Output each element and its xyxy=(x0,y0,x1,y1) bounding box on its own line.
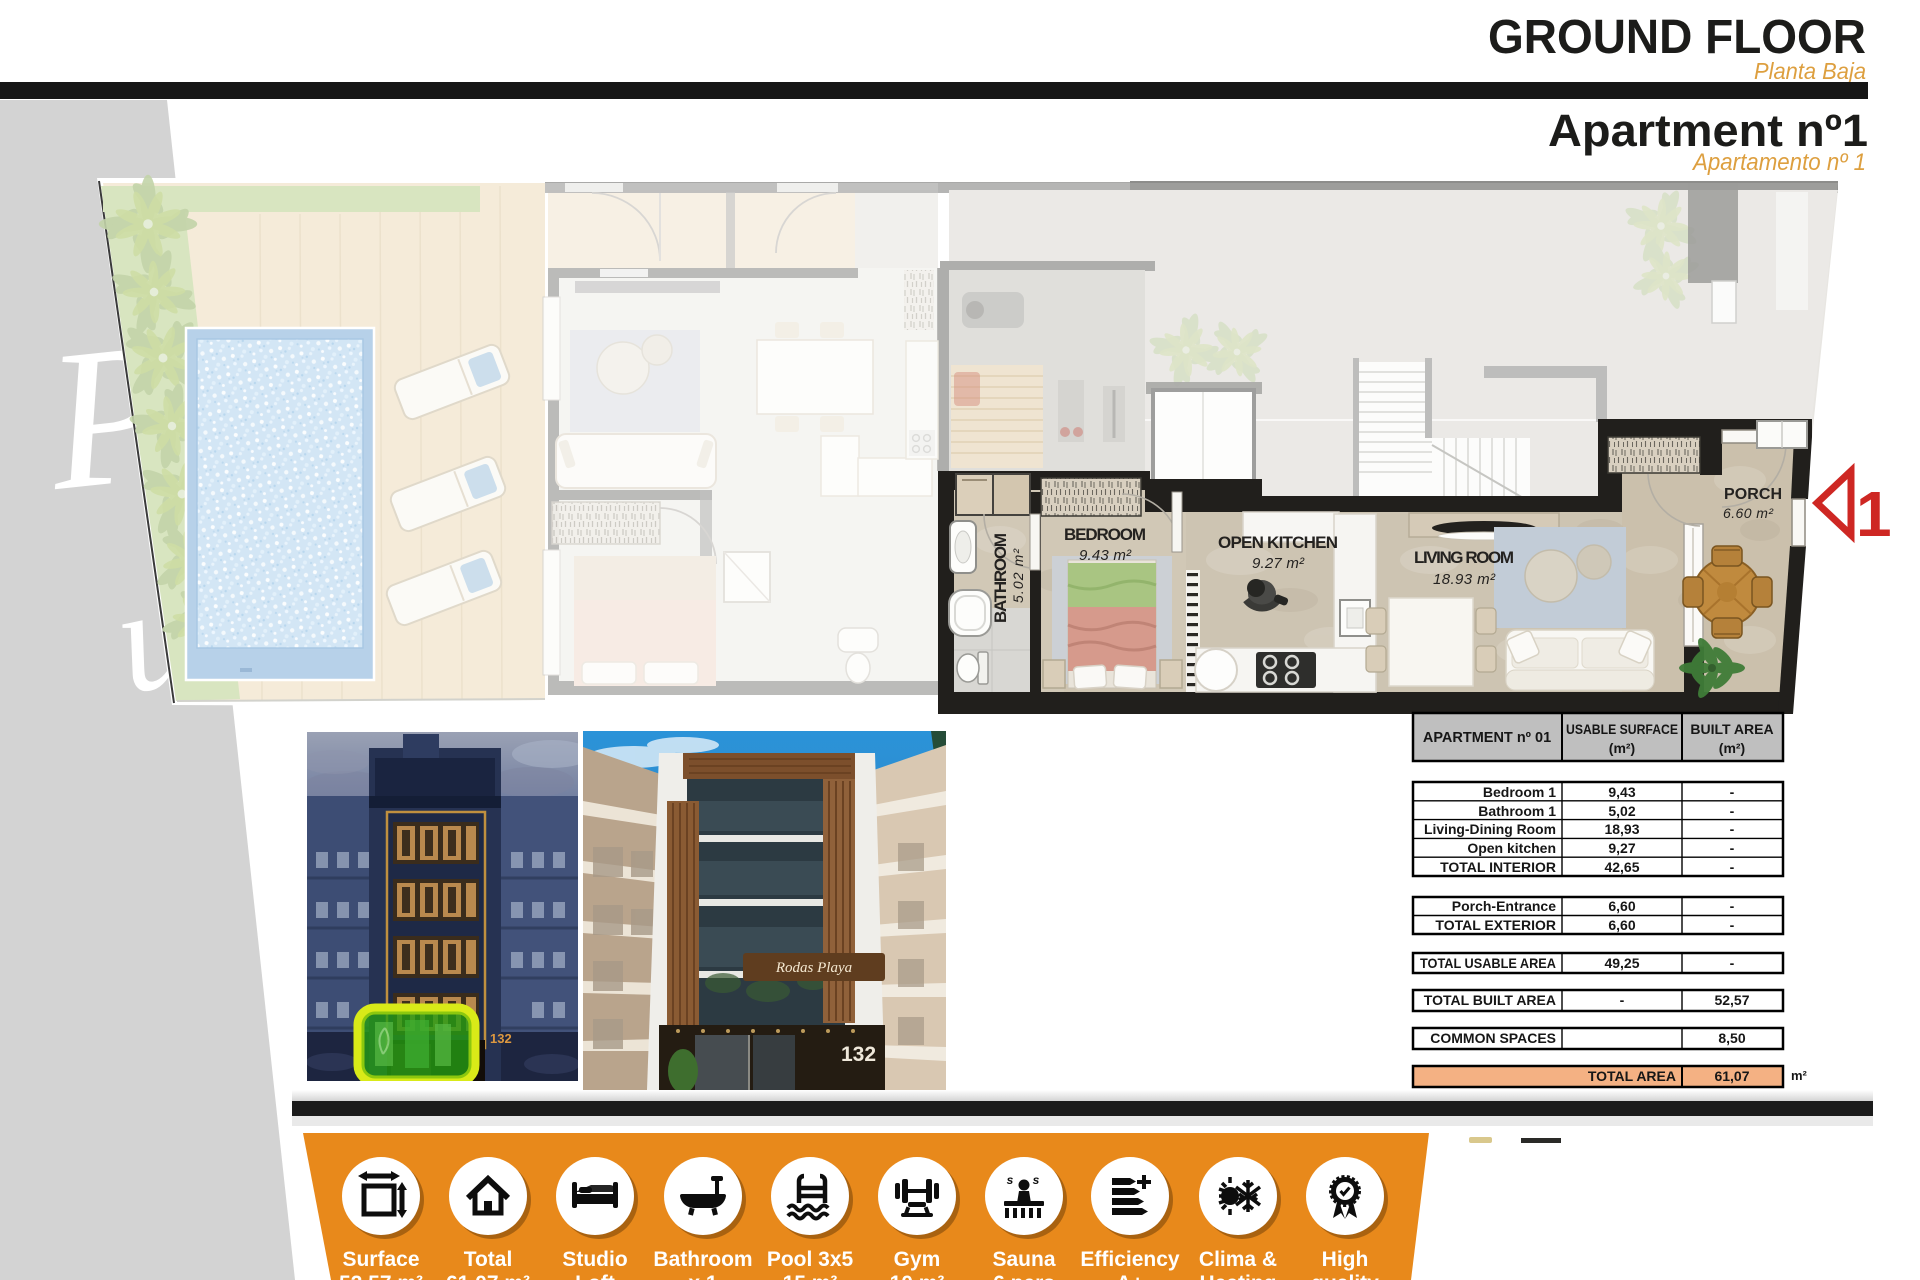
svg-text:Rodas Playa: Rodas Playa xyxy=(775,960,852,976)
svg-text:Porch-Entrance: Porch-Entrance xyxy=(1452,898,1556,914)
svg-text:Loft: Loft xyxy=(575,1272,615,1280)
svg-text:TOTAL INTERIOR: TOTAL INTERIOR xyxy=(1440,859,1556,875)
svg-text:TOTAL USABLE AREA: TOTAL USABLE AREA xyxy=(1420,955,1556,971)
svg-text:quality: quality xyxy=(1311,1272,1379,1280)
svg-text:Sauna: Sauna xyxy=(992,1248,1055,1271)
svg-text:Efficiency: Efficiency xyxy=(1080,1248,1180,1271)
svg-text:Bathroom 1: Bathroom 1 xyxy=(1478,803,1556,819)
svg-text:132: 132 xyxy=(841,1043,876,1066)
svg-text:5,02: 5,02 xyxy=(1608,803,1635,819)
svg-text:1: 1 xyxy=(1856,478,1892,550)
svg-text:LIVING ROOM: LIVING ROOM xyxy=(1414,548,1514,567)
svg-text:Gym: Gym xyxy=(894,1248,941,1271)
svg-text:BEDROOM: BEDROOM xyxy=(1064,525,1146,544)
svg-text:6,60: 6,60 xyxy=(1608,917,1635,933)
svg-text:Studio: Studio xyxy=(562,1248,627,1271)
svg-text:49,25: 49,25 xyxy=(1604,955,1639,971)
svg-text:COMMON SPACES: COMMON SPACES xyxy=(1430,1030,1556,1046)
svg-text:132: 132 xyxy=(490,1031,512,1046)
svg-text:OPEN KITCHEN: OPEN KITCHEN xyxy=(1218,533,1338,552)
svg-text:x 1: x 1 xyxy=(688,1272,718,1280)
svg-text:PORCH: PORCH xyxy=(1724,486,1782,503)
svg-text:18.93 m²: 18.93 m² xyxy=(1433,571,1496,588)
svg-text:TOTAL EXTERIOR: TOTAL EXTERIOR xyxy=(1435,917,1556,933)
svg-text:6 pers: 6 pers xyxy=(993,1272,1055,1280)
svg-text:s: s xyxy=(1007,1173,1014,1187)
svg-text:-: - xyxy=(1730,803,1735,819)
svg-text:15 m²: 15 m² xyxy=(783,1272,838,1280)
svg-text:(m²): (m²) xyxy=(1719,740,1745,756)
svg-text:TOTAL BUILT AREA: TOTAL BUILT AREA xyxy=(1424,992,1556,1008)
svg-text:52,57 m²: 52,57 m² xyxy=(339,1272,423,1280)
svg-text:61,07 m²: 61,07 m² xyxy=(446,1272,530,1280)
svg-text:-: - xyxy=(1620,992,1625,1008)
svg-text:6,60: 6,60 xyxy=(1608,898,1635,914)
svg-text:Heating: Heating xyxy=(1199,1272,1276,1280)
svg-text:-: - xyxy=(1730,840,1735,856)
svg-text:-: - xyxy=(1730,898,1735,914)
svg-text:Apartamento nº 1: Apartamento nº 1 xyxy=(1691,149,1866,176)
svg-text:-: - xyxy=(1730,784,1735,800)
svg-text:9.43 m²: 9.43 m² xyxy=(1079,547,1132,564)
svg-text:10 m²: 10 m² xyxy=(890,1272,945,1280)
svg-text:Pool 3x5: Pool 3x5 xyxy=(767,1248,854,1271)
svg-text:Planta Baja: Planta Baja xyxy=(1754,58,1866,84)
svg-text:-: - xyxy=(1730,821,1735,837)
svg-text:BATHROOM: BATHROOM xyxy=(991,533,1010,623)
svg-text:Bedroom 1: Bedroom 1 xyxy=(1483,784,1556,800)
svg-text:9,27: 9,27 xyxy=(1608,840,1635,856)
svg-text:42,65: 42,65 xyxy=(1604,859,1639,875)
svg-text:A+: A+ xyxy=(1116,1272,1143,1280)
svg-text:Total: Total xyxy=(464,1248,513,1271)
svg-text:Surface: Surface xyxy=(342,1248,419,1271)
svg-text:6.60 m²: 6.60 m² xyxy=(1723,505,1774,521)
svg-text:USABLE SURFACE: USABLE SURFACE xyxy=(1566,721,1678,737)
svg-text:9,43: 9,43 xyxy=(1608,784,1635,800)
svg-text:9.27 m²: 9.27 m² xyxy=(1252,555,1305,572)
svg-text:GROUND FLOOR: GROUND FLOOR xyxy=(1488,11,1866,64)
svg-text:8,50: 8,50 xyxy=(1718,1030,1745,1046)
svg-text:-: - xyxy=(1730,917,1735,933)
svg-text:Living-Dining Room: Living-Dining Room xyxy=(1424,821,1556,837)
svg-text:61,07: 61,07 xyxy=(1714,1068,1749,1084)
svg-text:Clima &: Clima & xyxy=(1199,1248,1277,1271)
svg-text:(m²): (m²) xyxy=(1609,740,1635,756)
svg-text:m²: m² xyxy=(1791,1068,1808,1083)
svg-text:52,57: 52,57 xyxy=(1714,992,1749,1008)
svg-text:TOTAL AREA: TOTAL AREA xyxy=(1588,1068,1676,1084)
svg-text:Open kitchen: Open kitchen xyxy=(1467,840,1556,856)
svg-text:-: - xyxy=(1730,859,1735,875)
svg-text:-: - xyxy=(1730,955,1735,971)
svg-text:s: s xyxy=(1033,1173,1040,1187)
svg-text:BUILT AREA: BUILT AREA xyxy=(1690,721,1773,737)
svg-text:High: High xyxy=(1322,1248,1369,1271)
svg-text:Bathroom: Bathroom xyxy=(653,1248,752,1271)
svg-text:APARTMENT nº 01: APARTMENT nº 01 xyxy=(1423,730,1551,746)
svg-text:5.02 m²: 5.02 m² xyxy=(1010,548,1026,603)
svg-text:18,93: 18,93 xyxy=(1604,821,1639,837)
